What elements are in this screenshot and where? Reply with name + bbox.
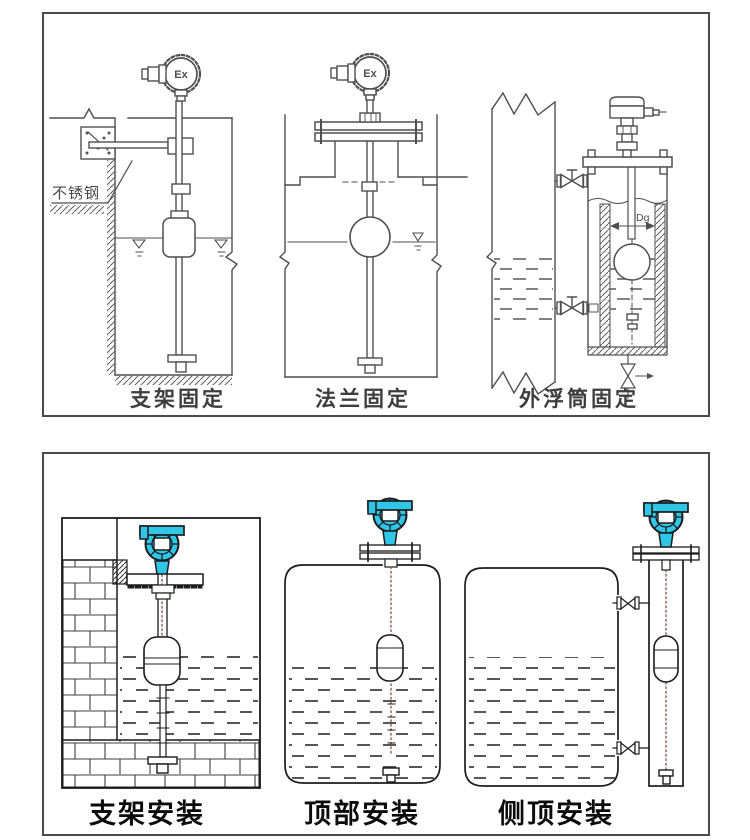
chamber-bottom xyxy=(588,347,667,355)
caption-external-chamber-fixing: 外浮筒固定 xyxy=(519,387,639,411)
stem-coupling xyxy=(172,184,190,194)
flange-plate-top xyxy=(633,547,699,553)
ex-marking-label: Ex xyxy=(174,69,188,81)
figure-external-chamber-fixing: Dg xyxy=(487,93,672,411)
liquid xyxy=(289,662,437,780)
float-cylinder xyxy=(163,218,195,257)
transmitter-head-icon xyxy=(368,499,412,546)
brick-wall xyxy=(63,560,117,740)
tank-liquid xyxy=(494,257,553,320)
chamber-flange xyxy=(583,157,672,167)
liquid xyxy=(120,650,258,738)
bottom-stop xyxy=(659,770,673,776)
figure-side-top-install: 侧顶安装 xyxy=(465,501,699,830)
ceiling-line xyxy=(50,109,114,118)
diagram-stage: Ex 不锈钢 支架固定 xyxy=(0,0,750,840)
bottom-panel-illustration: 支架安装 xyxy=(44,454,708,834)
tank-break-top xyxy=(492,93,555,115)
isolation-valve-upper-icon xyxy=(555,170,587,188)
transmitter-head-icon xyxy=(644,501,688,548)
figure-bracket-install: 支架安装 xyxy=(62,518,260,829)
figure-bracket-fixing: Ex 不锈钢 支架固定 xyxy=(50,55,237,411)
top-panel-fixing-methods: Ex 不锈钢 支架固定 xyxy=(42,12,710,417)
bottom-panel-install-methods: 支架安装 xyxy=(42,452,710,836)
liquid xyxy=(469,657,615,783)
flange-plate-top xyxy=(360,545,420,551)
tank-wall-right xyxy=(226,118,237,375)
flange-collar xyxy=(360,113,380,122)
transmitter-head-ex-icon: Ex xyxy=(142,55,200,101)
caption-side-top-install: 侧顶安装 xyxy=(498,799,614,829)
bottom-stop xyxy=(358,358,382,365)
flange-plate-bottom xyxy=(315,133,422,141)
transmitter-head-ex-icon: Ex xyxy=(331,54,389,100)
isolation-valve-lower-icon xyxy=(555,297,598,315)
float-sphere xyxy=(614,244,650,280)
caption-flange-fixing: 法兰固定 xyxy=(315,387,411,411)
wall-ledge xyxy=(113,560,127,584)
transmitter-head-icon xyxy=(140,526,184,574)
diameter-label: Dg xyxy=(636,212,650,224)
ground-hatch xyxy=(115,376,232,385)
caption-bracket-install: 支架安装 xyxy=(89,799,205,829)
figure-top-install: 顶部安装 xyxy=(285,499,440,830)
stem-coupling xyxy=(362,182,377,191)
tank-wall-right xyxy=(432,115,441,377)
flange-plate-top xyxy=(315,122,422,130)
support-arm xyxy=(89,142,168,148)
float-sphere xyxy=(350,217,390,257)
bottom-stop xyxy=(383,768,399,775)
caption-bracket-fixing: 支架固定 xyxy=(130,387,226,411)
chamber-wall-hatch-left xyxy=(600,204,610,347)
top-panel-illustration: Ex 不锈钢 支架固定 xyxy=(44,14,708,415)
float-capsule xyxy=(144,637,180,685)
head-neck xyxy=(383,531,397,545)
level-marker xyxy=(413,233,423,241)
transmitter-junction-box-icon xyxy=(610,97,666,157)
float-capsule xyxy=(654,636,678,682)
bottom-stop xyxy=(148,757,177,764)
pipe-connection-lower-icon xyxy=(613,740,649,756)
chamber-wall-hatch-right xyxy=(655,204,665,347)
guide-tube xyxy=(628,167,635,239)
pipe-connection-upper-icon xyxy=(613,595,649,611)
head-neck xyxy=(155,561,169,574)
head-neck xyxy=(659,533,673,547)
nozzle xyxy=(385,559,397,567)
flange-plate-bottom xyxy=(633,554,699,560)
figure-flange-fixing: Ex 法兰固定 xyxy=(280,54,467,411)
tank-wall-left xyxy=(487,109,496,388)
float-capsule xyxy=(377,635,403,681)
stainless-steel-note: 不锈钢 xyxy=(52,185,100,202)
bottom-stop xyxy=(168,355,196,362)
flange-plate-bottom xyxy=(360,553,420,559)
ex-marking-label: Ex xyxy=(363,68,377,80)
tank-wall-left xyxy=(280,115,289,377)
caption-top-install: 顶部安装 xyxy=(304,798,420,829)
lower-stem xyxy=(160,685,166,757)
